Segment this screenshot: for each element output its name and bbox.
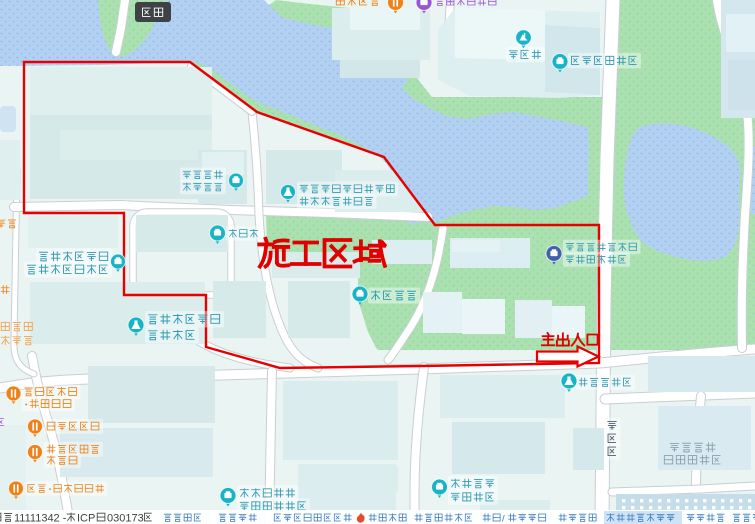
svg-text:030173: 030173 <box>107 513 144 524</box>
svg-text:11111342 -: 11111342 - <box>14 513 67 524</box>
svg-text:/: / <box>502 514 505 524</box>
svg-text:ICP: ICP <box>77 513 95 524</box>
